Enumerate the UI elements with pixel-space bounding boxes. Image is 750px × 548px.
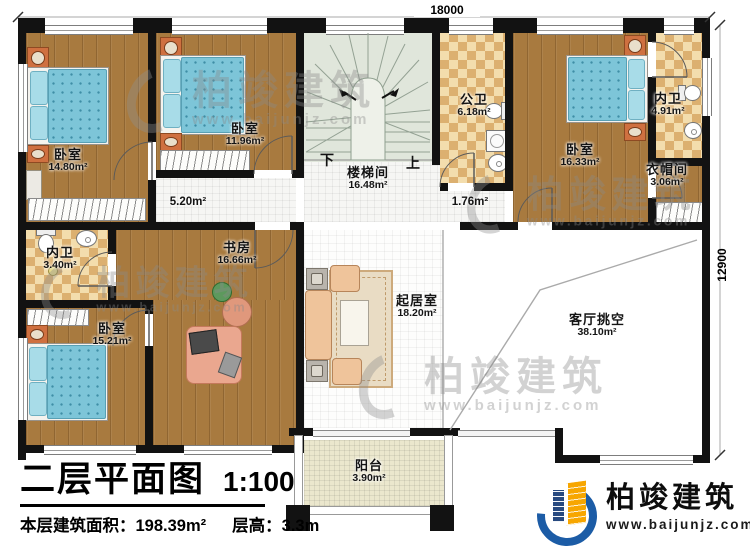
pillow	[163, 94, 181, 128]
sink	[684, 122, 702, 139]
brand-logo-icon	[536, 477, 598, 539]
sofa-single	[332, 358, 362, 385]
window	[537, 25, 623, 35]
wall	[148, 25, 156, 142]
room-area: 5.20m²	[148, 196, 228, 209]
balcony-column	[430, 505, 454, 531]
window	[18, 338, 28, 420]
pillow	[628, 59, 645, 89]
wall-pier	[404, 18, 449, 33]
floor-plan-canvas: 柏竣建筑 www.baijunjz.com 柏竣建筑 www.baijunjz.…	[0, 0, 750, 548]
room-label-hall-right: 1.76m²	[430, 196, 510, 209]
stairwell-floor	[304, 33, 432, 162]
floor-area-label: 本层建筑面积：198.39m²	[20, 512, 206, 536]
wall	[296, 230, 304, 445]
room-label-cloakroom: 衣帽间 3.06m²	[627, 163, 707, 189]
room-label-ensuite-tr: 内卫 4.91m²	[628, 92, 708, 118]
wall	[460, 222, 518, 230]
plan-scale: 1:100	[223, 466, 295, 498]
room-area: 1.76m²	[430, 196, 510, 209]
mattress	[48, 69, 107, 143]
wall-pier	[18, 18, 45, 33]
mattress	[568, 57, 627, 121]
brand-text: 柏竣建筑 www.baijunjz.com	[606, 484, 750, 532]
room-area: 3.06m²	[627, 177, 707, 189]
wall	[156, 222, 255, 230]
wall-pier	[623, 18, 664, 33]
wall	[555, 428, 563, 463]
room-area: 4.91m²	[628, 106, 708, 118]
room-label-void: 客厅挑空 38.10m²	[557, 313, 637, 339]
wall	[145, 346, 153, 445]
room-area: 11.96m²	[205, 136, 285, 148]
logo-building-icon	[553, 490, 564, 522]
room-label-living-room: 起居室 18.20m²	[377, 294, 457, 320]
dresser	[26, 170, 42, 200]
wall-pier	[493, 18, 537, 33]
floor-height-label: 层高：3.3m	[232, 512, 319, 536]
room-label-public-bath: 公卫 6.18m²	[434, 93, 514, 119]
room-area: 18.20m²	[377, 308, 457, 320]
room-label-bedroom-tl: 卧室 14.80m²	[28, 148, 108, 174]
computer-monitor	[189, 329, 220, 355]
window	[600, 455, 693, 465]
title-block: 二层平面图 1:100 本层建筑面积：198.39m² 层高：3.3m	[20, 458, 319, 536]
mattress	[47, 345, 106, 419]
window	[326, 25, 404, 35]
room-label-balcony: 阳台 3.90m²	[329, 459, 409, 485]
room-label-study: 书房 16.66m²	[197, 241, 277, 267]
sink	[76, 230, 97, 247]
pillow	[29, 382, 47, 416]
wall	[108, 222, 116, 254]
balcony-rail	[444, 435, 453, 511]
logo-building-icon	[566, 481, 586, 526]
brand-logo: 柏竣建筑 www.baijunjz.com	[536, 477, 750, 539]
wardrobe	[160, 150, 250, 171]
wall	[648, 198, 656, 222]
room-label-stairwell: 楼梯间 16.48m²	[328, 166, 408, 192]
sofa-single	[330, 265, 360, 292]
window	[172, 25, 267, 35]
wall-pier	[267, 18, 326, 33]
wall	[18, 222, 156, 230]
nightstand	[624, 123, 646, 141]
title-underline	[20, 504, 265, 507]
nightstand	[27, 47, 49, 69]
room-area: 16.66m²	[197, 255, 277, 267]
room-label-bedroom-tm: 卧室 11.96m²	[205, 122, 285, 148]
window	[18, 64, 28, 152]
nightstand	[26, 325, 48, 344]
nightstand	[624, 35, 646, 57]
dimension-top-width: 18000	[414, 3, 480, 17]
room-label-bedroom-bl: 卧室 15.21m²	[72, 322, 152, 348]
wall	[290, 222, 304, 230]
wall	[108, 286, 116, 308]
room-label-hall-left: 5.20m²	[148, 196, 228, 209]
side-table	[306, 268, 328, 290]
room-area: 15.21m²	[72, 336, 152, 348]
wall	[552, 222, 702, 230]
window	[458, 430, 555, 437]
coffee-table	[340, 300, 369, 346]
sofa-long	[305, 290, 332, 360]
wall	[18, 300, 145, 308]
room-label-bedroom-tr: 卧室 16.33m²	[540, 143, 620, 169]
pillow	[163, 59, 181, 93]
room-area: 3.90m²	[329, 473, 409, 485]
window	[184, 445, 272, 455]
wall	[440, 183, 448, 191]
balcony-rail	[302, 506, 444, 515]
room-area: 38.10m²	[557, 327, 637, 339]
pillow	[30, 71, 48, 105]
brand-url: www.baijunjz.com	[606, 517, 750, 532]
plan-stats: 本层建筑面积：198.39m² 层高：3.3m	[20, 512, 319, 536]
window	[44, 445, 136, 455]
room-area: 3.40m²	[20, 260, 100, 272]
wall	[156, 170, 254, 178]
window	[45, 25, 133, 35]
stair-up-label: 上	[406, 153, 420, 173]
plan-title: 二层平面图	[20, 458, 205, 502]
stair-down-label: 下	[320, 150, 334, 170]
dimension-right-height: 12900	[715, 233, 729, 297]
wall-pier	[694, 18, 710, 33]
brand-name: 柏竣建筑	[606, 484, 750, 513]
room-area: 6.18m²	[434, 107, 514, 119]
wall-pier	[133, 18, 172, 33]
side-table	[306, 360, 328, 382]
window	[664, 25, 694, 35]
room-area: 16.48m²	[328, 180, 408, 192]
wall	[474, 183, 513, 191]
wardrobe	[656, 202, 704, 224]
room-label-ensuite-left: 内卫 3.40m²	[20, 246, 100, 272]
window	[449, 25, 493, 35]
room-area: 16.33m²	[540, 157, 620, 169]
nightstand	[160, 133, 182, 151]
void-floor	[443, 230, 702, 455]
balcony-door-glass	[313, 430, 410, 437]
wall	[145, 300, 153, 314]
pillow	[29, 347, 47, 381]
desk-chair	[222, 297, 252, 327]
title-row: 二层平面图 1:100	[20, 458, 319, 502]
wall	[296, 25, 304, 178]
pillow	[30, 106, 48, 140]
room-area: 14.80m²	[28, 162, 108, 174]
wardrobe	[28, 198, 146, 221]
